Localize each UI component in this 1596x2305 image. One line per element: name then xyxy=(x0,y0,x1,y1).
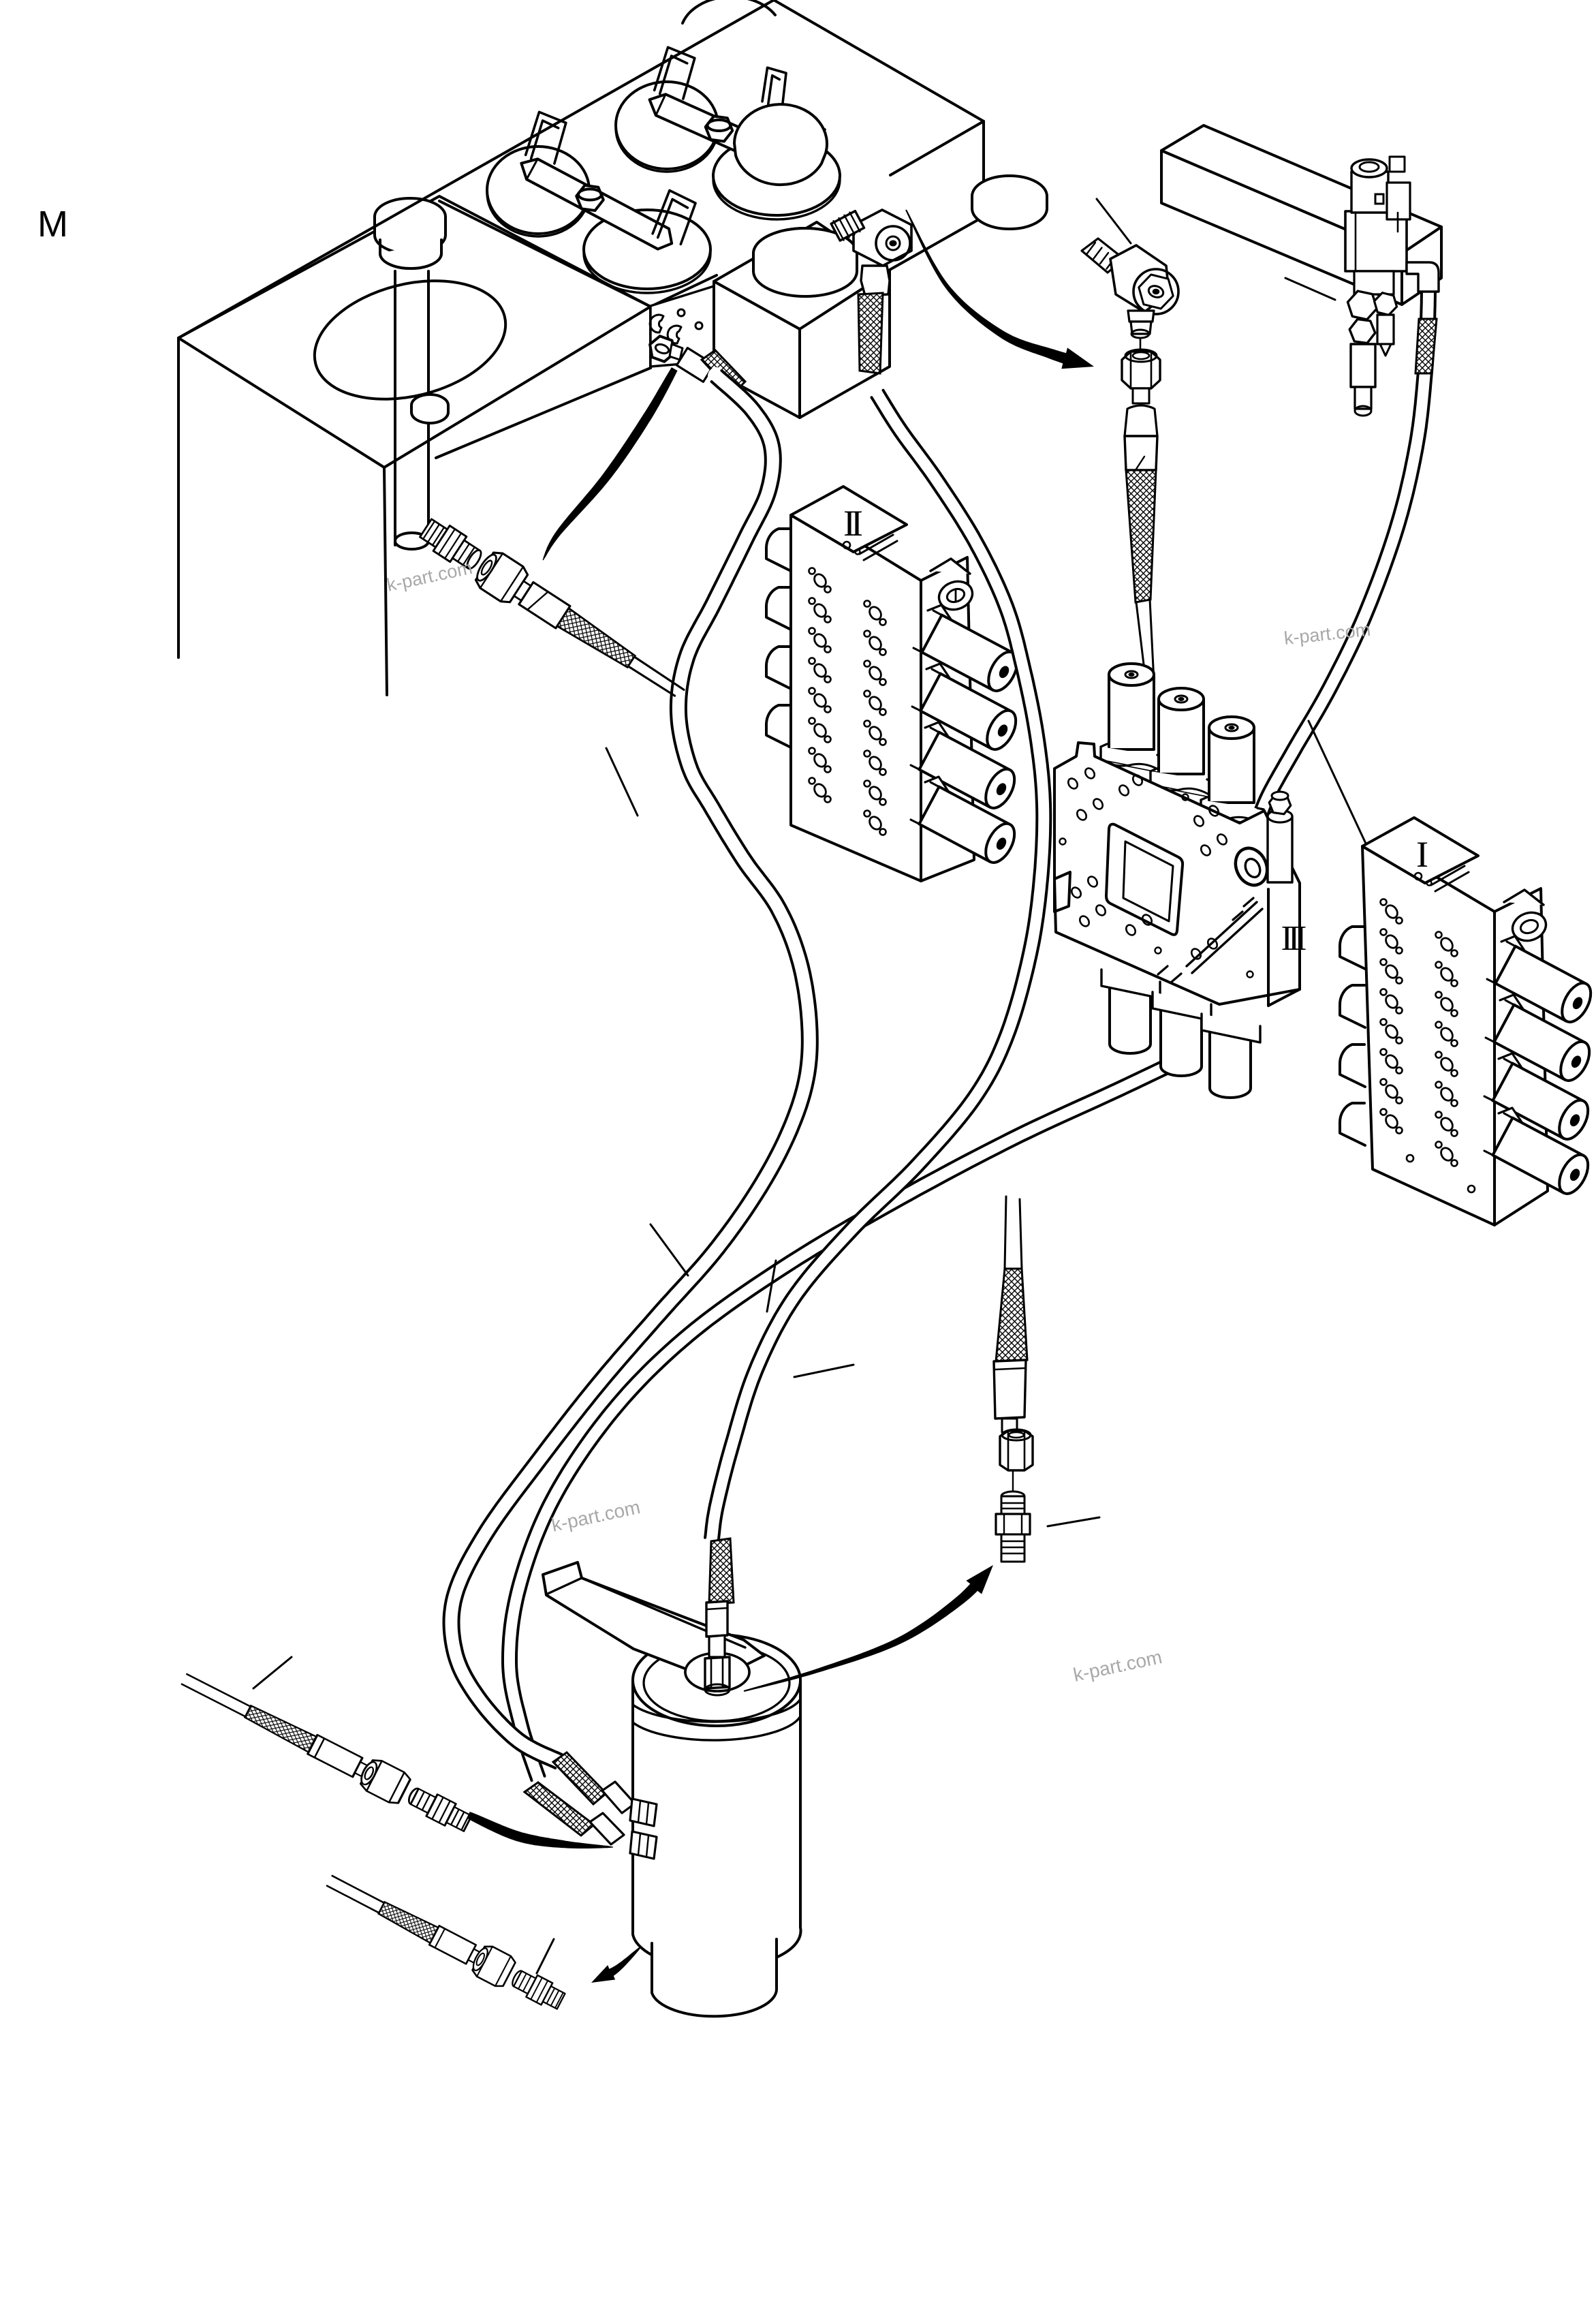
svg-text:I: I xyxy=(1416,834,1428,875)
svg-text:M: M xyxy=(37,204,68,245)
